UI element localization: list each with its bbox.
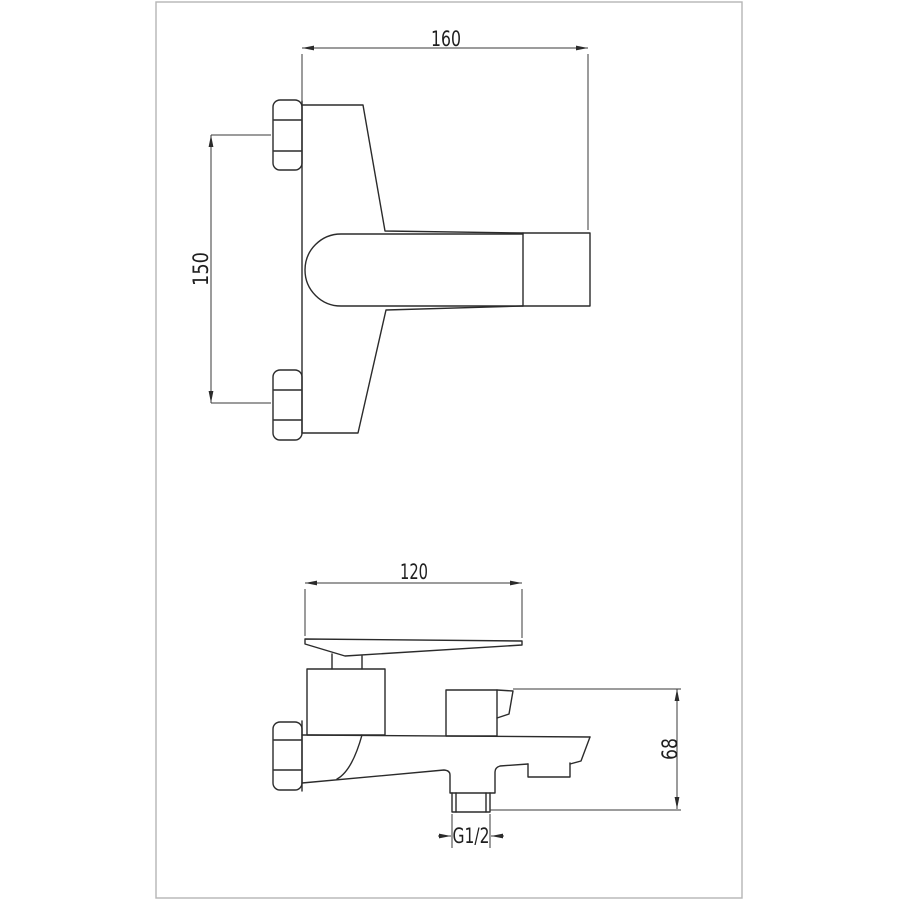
dim-label-g12: G1/2 [453, 824, 490, 848]
spout-right-edge [570, 737, 590, 764]
sheet-border [156, 2, 742, 898]
faucet-technical-drawing: 160 150 [0, 0, 900, 900]
spout-rounded-front [305, 234, 523, 306]
handle-blade [305, 639, 522, 656]
dimension-handle-length: 120 [305, 560, 522, 638]
spout-bottom-left [302, 770, 452, 793]
upper-side-view: 160 150 [189, 27, 590, 440]
threaded-outlet [452, 793, 490, 812]
wall-nut [273, 722, 302, 790]
aerator [528, 763, 570, 777]
dim-label-160: 160 [431, 27, 461, 51]
dim-label-68: 68 [658, 738, 682, 760]
wall-nut-top [273, 100, 302, 170]
dim-label-150: 150 [189, 252, 213, 286]
dimension-inlet-distance: 150 [189, 135, 271, 403]
dimension-spout-reach: 160 [302, 27, 588, 230]
dimension-outlet-thread: G1/2 [438, 814, 504, 848]
spout-top-edge [302, 735, 590, 737]
shower-connector [446, 690, 513, 736]
spout-tip [523, 233, 590, 306]
cartridge-housing [307, 669, 385, 735]
drawing-page: 160 150 [0, 0, 900, 900]
body-lower-contour [302, 306, 523, 433]
dim-label-120: 120 [400, 560, 428, 584]
body-curve-transition [337, 735, 362, 779]
lower-side-view: 120 68 G1/2 [273, 560, 682, 848]
spout-bottom-mid [490, 764, 528, 793]
body-upper-contour [302, 105, 523, 233]
wall-nut-bottom [273, 370, 302, 440]
